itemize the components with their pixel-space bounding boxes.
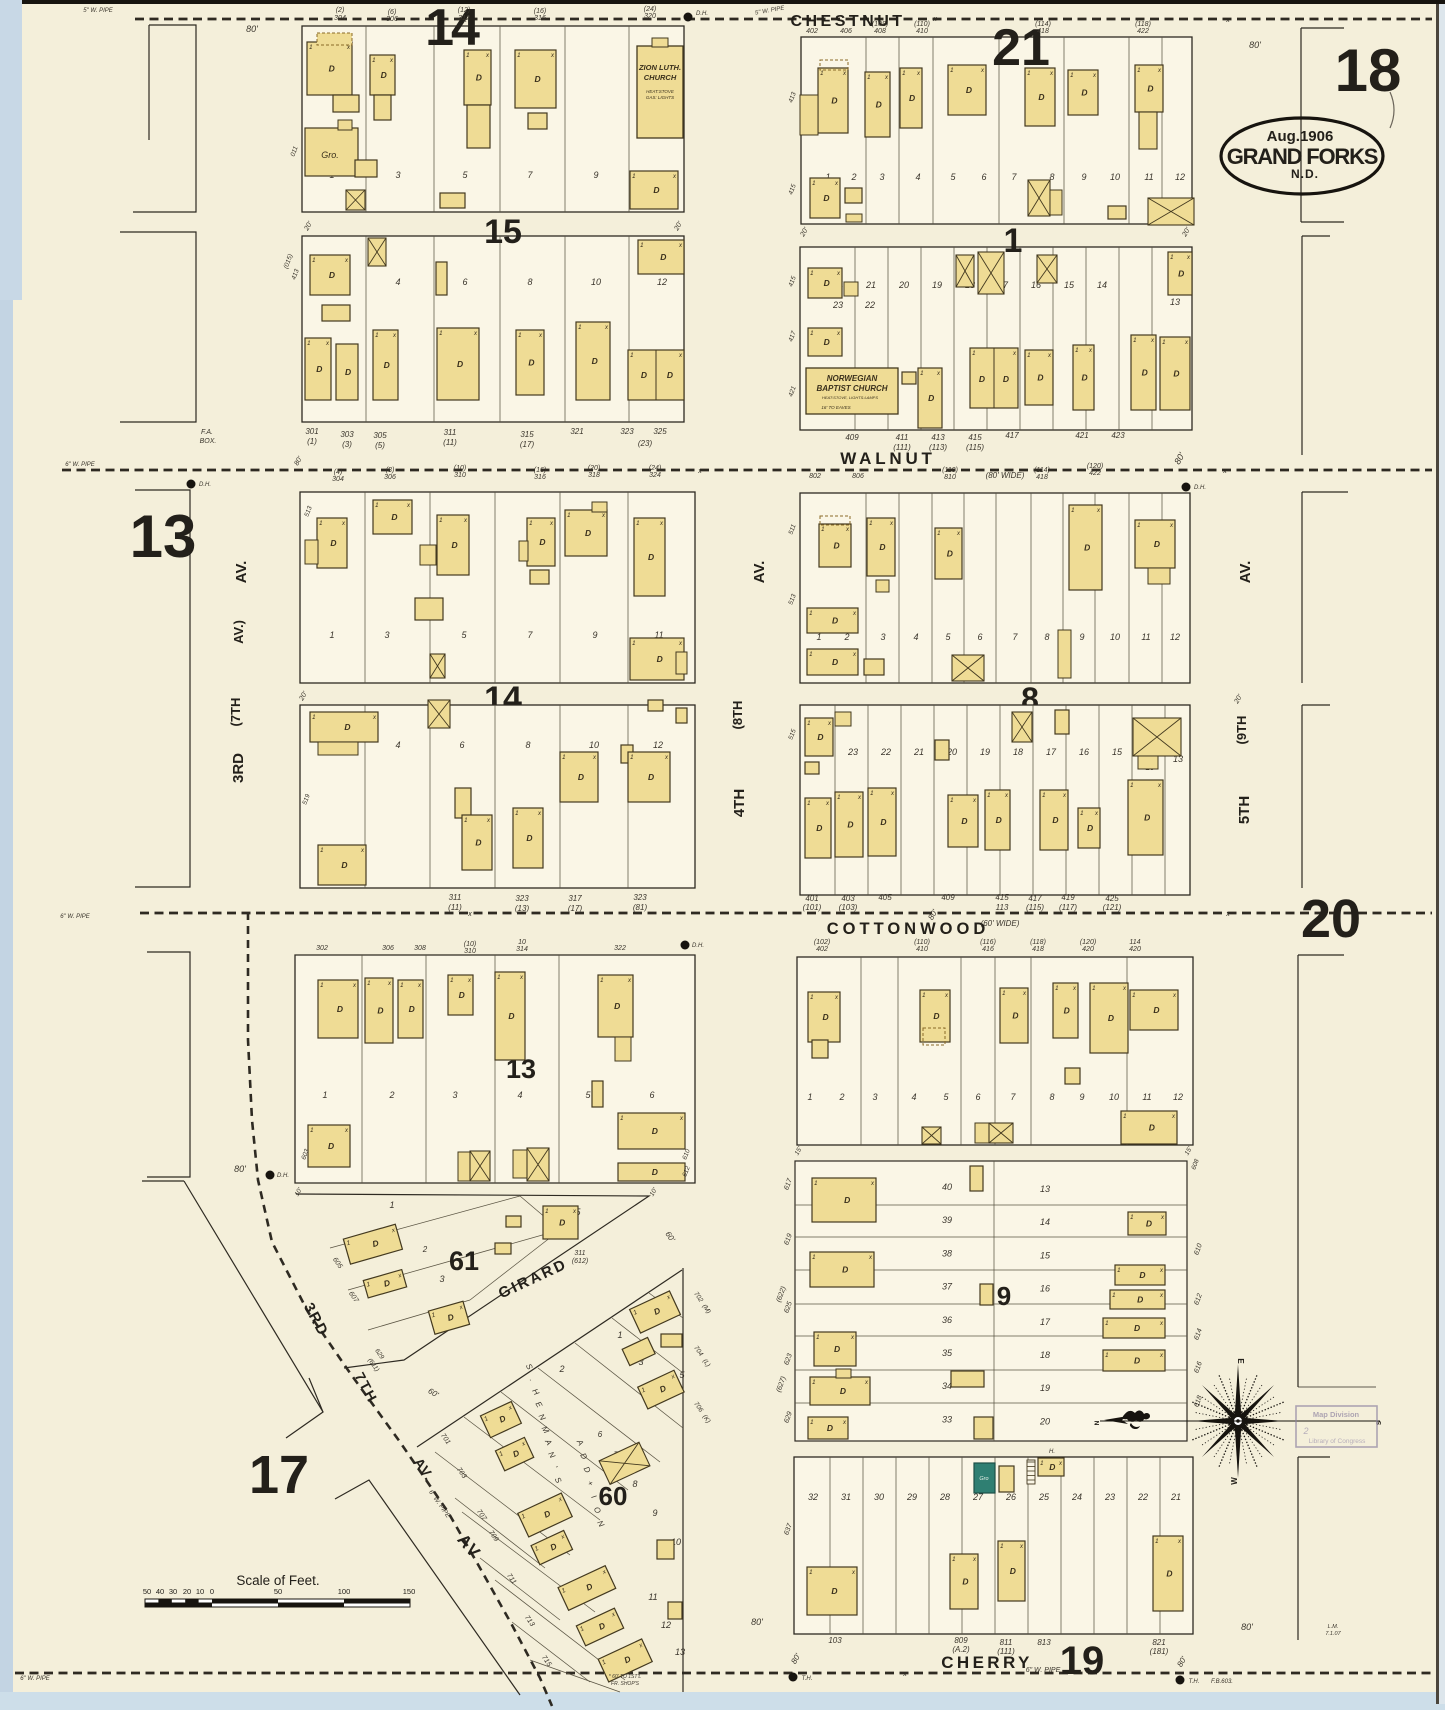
svg-text:420: 420 xyxy=(1082,946,1094,953)
svg-text:12: 12 xyxy=(1173,1092,1183,1102)
svg-text:301: 301 xyxy=(305,427,318,436)
svg-text:150: 150 xyxy=(403,1587,416,1596)
svg-text:D: D xyxy=(657,654,663,664)
svg-text:10: 10 xyxy=(1110,172,1120,182)
svg-text:20: 20 xyxy=(183,1587,191,1596)
svg-text:D: D xyxy=(842,1265,848,1275)
svg-text:1: 1 xyxy=(1170,254,1174,261)
svg-text:1: 1 xyxy=(400,982,404,989)
svg-text:T.H.: T.H. xyxy=(802,1676,813,1682)
svg-text:322: 322 xyxy=(614,945,626,952)
svg-text:11: 11 xyxy=(648,1592,657,1602)
svg-text:7.1.07: 7.1.07 xyxy=(1325,1631,1341,1637)
svg-text:8: 8 xyxy=(1049,1092,1054,1102)
svg-text:4TH: 4TH xyxy=(731,789,748,817)
svg-text:6: 6 xyxy=(462,277,467,287)
svg-text:15: 15 xyxy=(1112,747,1123,757)
svg-text:304: 304 xyxy=(332,476,344,483)
svg-text:D: D xyxy=(1003,374,1009,384)
svg-text:Gro.: Gro. xyxy=(321,150,339,160)
svg-text:80': 80' xyxy=(1241,1622,1253,1632)
svg-text:3: 3 xyxy=(880,632,885,642)
svg-text:D: D xyxy=(1037,373,1043,383)
svg-text:F.B.603.: F.B.603. xyxy=(1211,1679,1233,1685)
svg-text:28: 28 xyxy=(939,1492,950,1502)
svg-text:1: 1 xyxy=(1137,67,1141,74)
svg-text:402: 402 xyxy=(816,946,828,953)
svg-text:318: 318 xyxy=(588,472,600,479)
svg-text:22: 22 xyxy=(1137,1492,1148,1502)
svg-text:(114): (114) xyxy=(1035,21,1051,28)
svg-text:9: 9 xyxy=(593,170,598,180)
svg-text:2: 2 xyxy=(558,1364,564,1374)
svg-text:D: D xyxy=(876,100,882,110)
svg-text:D: D xyxy=(1084,543,1090,553)
svg-text:1: 1 xyxy=(902,70,906,77)
svg-text:1: 1 xyxy=(617,1330,622,1340)
svg-text:D: D xyxy=(585,528,591,538)
svg-text:1: 1 xyxy=(439,330,443,337)
svg-text:421: 421 xyxy=(1075,431,1088,440)
svg-text:1: 1 xyxy=(1132,992,1136,999)
svg-text:11: 11 xyxy=(1141,632,1150,642)
svg-text:(181): (181) xyxy=(1150,1647,1169,1656)
svg-text:D: D xyxy=(1081,88,1087,98)
svg-text:2: 2 xyxy=(388,1090,394,1100)
svg-text:D: D xyxy=(1049,1462,1055,1472)
svg-text:20: 20 xyxy=(1301,889,1361,949)
svg-text:13: 13 xyxy=(675,1647,685,1657)
svg-text:D: D xyxy=(476,73,482,83)
svg-text:(11): (11) xyxy=(443,438,457,447)
svg-text:17: 17 xyxy=(1046,747,1057,757)
svg-text:308: 308 xyxy=(414,945,426,952)
svg-text:(111): (111) xyxy=(893,443,911,452)
svg-text:9: 9 xyxy=(652,1508,657,1518)
svg-text:1: 1 xyxy=(636,520,640,527)
svg-text:1: 1 xyxy=(920,370,924,377)
svg-text:D: D xyxy=(341,860,347,870)
svg-text:(5): (5) xyxy=(375,441,385,450)
svg-text:23: 23 xyxy=(1104,1492,1115,1502)
svg-text:D: D xyxy=(1038,92,1044,102)
svg-text:410: 410 xyxy=(916,28,928,35)
svg-text:4: 4 xyxy=(913,632,918,642)
svg-text:813: 813 xyxy=(1037,1638,1051,1647)
svg-text:1: 1 xyxy=(870,790,874,797)
svg-text:8: 8 xyxy=(1044,632,1049,642)
svg-text:1: 1 xyxy=(1130,782,1134,789)
svg-text:411: 411 xyxy=(896,433,909,442)
svg-text:(10): (10) xyxy=(454,465,466,472)
svg-text:422: 422 xyxy=(1089,470,1101,477)
svg-text:HEAT:STOVE, LIGHTS:LAMPS: HEAT:STOVE, LIGHTS:LAMPS xyxy=(822,395,878,400)
svg-text:806: 806 xyxy=(852,473,864,480)
svg-text:418: 418 xyxy=(1037,28,1049,35)
svg-text:20: 20 xyxy=(1039,1416,1050,1426)
svg-text:(13): (13) xyxy=(515,904,530,913)
svg-text:1: 1 xyxy=(320,847,324,854)
svg-text:100: 100 xyxy=(338,1587,351,1596)
svg-text:1: 1 xyxy=(322,1090,327,1100)
svg-text:1: 1 xyxy=(1075,347,1079,354)
svg-text:D: D xyxy=(962,1577,968,1587)
svg-text:D: D xyxy=(384,360,390,370)
svg-text:1: 1 xyxy=(515,810,519,817)
svg-text:D: D xyxy=(823,1012,829,1022)
svg-text:D: D xyxy=(452,540,458,550)
svg-text:(20): (20) xyxy=(588,465,600,472)
svg-text:D.H.: D.H. xyxy=(199,482,211,488)
svg-text:16: 16 xyxy=(1079,747,1089,757)
svg-text:1: 1 xyxy=(367,980,371,987)
svg-text:1: 1 xyxy=(1092,985,1096,992)
svg-text:(118): (118) xyxy=(1135,21,1151,28)
svg-text:303: 303 xyxy=(340,430,354,439)
svg-text:(23): (23) xyxy=(638,439,653,448)
svg-text:1: 1 xyxy=(329,630,334,640)
svg-text:10: 10 xyxy=(1109,1092,1119,1102)
svg-text:416: 416 xyxy=(982,946,994,953)
svg-text:GAS: LIGHTS: GAS: LIGHTS xyxy=(646,95,674,100)
svg-text:x: x xyxy=(1222,468,1227,475)
svg-text:1: 1 xyxy=(809,610,813,617)
svg-text:1: 1 xyxy=(1042,792,1046,799)
svg-text:D: D xyxy=(391,512,397,522)
svg-text:D: D xyxy=(344,722,350,732)
svg-text:38: 38 xyxy=(942,1248,952,1258)
svg-text:1: 1 xyxy=(810,1419,814,1426)
svg-text:409: 409 xyxy=(941,893,955,902)
svg-text:811: 811 xyxy=(1000,1638,1013,1647)
svg-text:12: 12 xyxy=(661,1620,671,1630)
svg-text:1: 1 xyxy=(837,794,841,801)
svg-text:Scale of Feet.: Scale of Feet. xyxy=(236,1573,319,1588)
svg-text:1: 1 xyxy=(812,1379,816,1386)
svg-text:D: D xyxy=(824,278,830,288)
svg-text:D: D xyxy=(1137,1295,1143,1305)
svg-text:16: 16 xyxy=(1040,1284,1050,1294)
svg-text:D: D xyxy=(834,1344,840,1354)
svg-text:25: 25 xyxy=(1038,1492,1050,1502)
svg-text:9: 9 xyxy=(1081,172,1086,182)
svg-text:D: D xyxy=(475,838,481,848)
svg-text:415: 415 xyxy=(968,433,982,442)
svg-text:323: 323 xyxy=(620,427,634,436)
svg-text:10: 10 xyxy=(591,277,601,287)
svg-text:1: 1 xyxy=(632,173,636,180)
svg-text:11: 11 xyxy=(1144,172,1153,182)
svg-text:(111): (111) xyxy=(997,1647,1015,1656)
svg-text:12: 12 xyxy=(1175,172,1185,182)
svg-text:305: 305 xyxy=(373,431,387,440)
svg-text:6" W. PIPE: 6" W. PIPE xyxy=(20,1676,51,1682)
svg-text:D: D xyxy=(660,252,666,262)
svg-text:10: 10 xyxy=(196,1587,204,1596)
svg-text:D: D xyxy=(844,1195,850,1205)
svg-text:CHURCH: CHURCH xyxy=(644,73,677,82)
svg-text:D: D xyxy=(1153,1005,1159,1015)
svg-text:(7TH: (7TH xyxy=(228,698,243,727)
svg-text:D: D xyxy=(816,823,822,833)
svg-text:14: 14 xyxy=(425,0,480,57)
svg-text:1: 1 xyxy=(517,52,521,59)
svg-text:D: D xyxy=(823,193,829,203)
svg-text:Map Division: Map Division xyxy=(1313,1410,1360,1419)
svg-text:3RD: 3RD xyxy=(230,753,247,783)
svg-text:2: 2 xyxy=(850,172,856,182)
svg-text:D: D xyxy=(653,185,659,195)
svg-text:(101): (101) xyxy=(803,903,822,912)
svg-text:4: 4 xyxy=(517,1090,522,1100)
svg-text:3: 3 xyxy=(395,170,400,180)
svg-text:32: 32 xyxy=(808,1492,818,1502)
svg-text:(4): (4) xyxy=(334,469,343,476)
svg-text:D.H.: D.H. xyxy=(692,943,704,949)
svg-text:26: 26 xyxy=(1005,1492,1016,1502)
svg-text:D: D xyxy=(539,537,545,547)
svg-text:19: 19 xyxy=(1060,1639,1105,1683)
svg-text:1: 1 xyxy=(1130,1214,1134,1221)
svg-text:D: D xyxy=(909,93,915,103)
svg-text:D: D xyxy=(817,732,823,742)
svg-text:FR. SHOP'S: FR. SHOP'S xyxy=(611,1681,640,1687)
svg-text:HEAT:STOVE: HEAT:STOVE xyxy=(646,89,675,94)
svg-text:D: D xyxy=(880,817,886,827)
svg-text:418: 418 xyxy=(1032,946,1044,953)
svg-text:1: 1 xyxy=(1123,1113,1127,1120)
svg-text:(612): (612) xyxy=(572,1258,588,1265)
svg-text:1: 1 xyxy=(816,1334,820,1341)
svg-text:AV.: AV. xyxy=(1237,561,1254,584)
svg-text:20: 20 xyxy=(898,280,909,290)
svg-text:3: 3 xyxy=(439,1274,444,1284)
svg-text:D: D xyxy=(457,359,463,369)
svg-text:(8TH: (8TH xyxy=(730,701,745,730)
svg-text:D: D xyxy=(879,542,885,552)
svg-text:D: D xyxy=(1166,1569,1172,1579)
svg-text:WALNUT: WALNUT xyxy=(840,449,936,468)
svg-text:D: D xyxy=(831,1586,837,1596)
svg-text:(6): (6) xyxy=(388,9,397,16)
svg-text:21: 21 xyxy=(865,280,876,290)
svg-text:33: 33 xyxy=(942,1414,952,1424)
svg-text:D: D xyxy=(459,990,465,1000)
svg-text:1: 1 xyxy=(814,1180,818,1187)
svg-text:1: 1 xyxy=(466,52,470,59)
svg-text:1: 1 xyxy=(950,797,954,804)
svg-text:BAPTIST CHURCH: BAPTIST CHURCH xyxy=(816,384,887,393)
svg-text:(1): (1) xyxy=(307,437,317,446)
svg-text:401: 401 xyxy=(805,894,818,903)
svg-text:1: 1 xyxy=(821,526,825,533)
svg-text:Aug.1906: Aug.1906 xyxy=(1267,128,1334,145)
svg-text:22: 22 xyxy=(864,300,875,310)
svg-text:D: D xyxy=(559,1218,565,1228)
svg-text:1: 1 xyxy=(529,520,533,527)
svg-text:1: 1 xyxy=(312,257,316,264)
svg-text:1: 1 xyxy=(497,974,501,981)
svg-text:417: 417 xyxy=(1028,894,1042,903)
svg-text:80': 80' xyxy=(1249,40,1261,50)
svg-text:306: 306 xyxy=(382,945,394,952)
svg-text:AV.): AV.) xyxy=(231,620,246,644)
svg-text:D: D xyxy=(1149,1123,1155,1133)
svg-text:821: 821 xyxy=(1152,1638,1165,1647)
svg-text:E: E xyxy=(1236,1358,1245,1364)
svg-text:1: 1 xyxy=(950,67,954,74)
svg-text:1: 1 xyxy=(1162,339,1166,346)
svg-text:1: 1 xyxy=(450,977,454,984)
svg-text:(17): (17) xyxy=(568,904,583,913)
svg-text:D: D xyxy=(840,1386,846,1396)
svg-text:16' TO EAVES: 16' TO EAVES xyxy=(821,405,850,410)
svg-text:9: 9 xyxy=(1079,632,1084,642)
svg-text:315: 315 xyxy=(520,430,534,439)
svg-text:80': 80' xyxy=(751,1617,763,1627)
svg-text:15: 15 xyxy=(1040,1250,1051,1260)
svg-text:S: S xyxy=(1377,1421,1383,1425)
svg-text:D.H.: D.H. xyxy=(277,1173,289,1179)
svg-text:D: D xyxy=(641,370,647,380)
svg-text:x: x xyxy=(932,16,937,23)
svg-text:D: D xyxy=(345,367,351,377)
svg-text:1: 1 xyxy=(1000,1543,1004,1550)
svg-text:37: 37 xyxy=(942,1282,953,1292)
svg-text:D: D xyxy=(1139,1270,1145,1280)
svg-text:1: 1 xyxy=(372,57,376,64)
svg-text:310: 310 xyxy=(454,472,466,479)
svg-text:14: 14 xyxy=(1040,1217,1050,1227)
svg-text:10: 10 xyxy=(589,740,599,750)
svg-text:(11): (11) xyxy=(448,903,462,912)
svg-text:40: 40 xyxy=(156,1587,164,1596)
svg-text:(113): (113) xyxy=(929,443,947,452)
svg-text:311: 311 xyxy=(444,428,457,437)
svg-text:D: D xyxy=(1134,1356,1140,1366)
svg-text:21: 21 xyxy=(913,747,924,757)
svg-text:H.: H. xyxy=(1049,1449,1055,1455)
svg-text:1: 1 xyxy=(1137,522,1141,529)
svg-text:D: D xyxy=(947,549,953,559)
svg-text:1: 1 xyxy=(632,640,636,647)
svg-text:D: D xyxy=(996,815,1002,825)
svg-text:314: 314 xyxy=(516,946,528,953)
svg-text:6" W. PIPE: 6" W. PIPE xyxy=(1026,1667,1061,1674)
svg-text:1: 1 xyxy=(319,520,323,527)
svg-text:17: 17 xyxy=(1040,1317,1051,1327)
svg-text:6" W. PIPE: 6" W. PIPE xyxy=(60,914,91,920)
svg-text:1: 1 xyxy=(312,714,316,721)
svg-text:(81): (81) xyxy=(633,903,648,912)
svg-text:317: 317 xyxy=(568,894,582,903)
svg-text:1: 1 xyxy=(807,1092,812,1102)
svg-text:5TH: 5TH xyxy=(1236,796,1253,824)
svg-text:423: 423 xyxy=(1111,431,1125,440)
svg-text:40: 40 xyxy=(942,1182,952,1192)
svg-text:D: D xyxy=(409,1004,415,1014)
svg-text:320: 320 xyxy=(644,13,656,20)
svg-text:L.M.: L.M. xyxy=(1328,1624,1339,1630)
svg-text:D: D xyxy=(329,270,335,280)
svg-text:D: D xyxy=(1173,369,1179,379)
svg-text:(12): (12) xyxy=(458,7,470,14)
svg-text:(108): (108) xyxy=(872,21,888,28)
svg-text:(120): (120) xyxy=(1087,463,1103,470)
svg-text:1: 1 xyxy=(937,530,941,537)
svg-text:D: D xyxy=(834,541,840,551)
svg-text:1: 1 xyxy=(518,332,522,339)
svg-text:18: 18 xyxy=(1040,1350,1050,1360)
svg-text:1: 1 xyxy=(310,1127,314,1134)
svg-text:36: 36 xyxy=(942,1315,952,1325)
svg-text:CHERRY: CHERRY xyxy=(941,1653,1033,1672)
svg-text:310: 310 xyxy=(464,948,476,955)
svg-text:4: 4 xyxy=(915,172,920,182)
svg-text:13: 13 xyxy=(1040,1184,1050,1194)
svg-text:17: 17 xyxy=(249,1445,309,1505)
svg-text:x: x xyxy=(1225,17,1230,24)
svg-text:(80' WIDE): (80' WIDE) xyxy=(986,471,1025,480)
svg-text:D: D xyxy=(667,370,673,380)
svg-text:x: x xyxy=(1225,911,1230,918)
svg-text:N.D.: N.D. xyxy=(1291,167,1319,181)
svg-text:(116): (116) xyxy=(980,939,996,946)
svg-text:(110): (110) xyxy=(914,21,930,28)
svg-text:413: 413 xyxy=(931,433,945,442)
svg-text:1: 1 xyxy=(807,720,811,727)
svg-text:6: 6 xyxy=(977,632,982,642)
svg-text:1: 1 xyxy=(810,330,814,337)
svg-text:114: 114 xyxy=(1129,939,1140,946)
svg-text:1: 1 xyxy=(1040,1460,1044,1467)
svg-text:1: 1 xyxy=(812,1254,816,1261)
svg-text:(121): (121) xyxy=(1103,903,1122,912)
svg-text:Library of Congress: Library of Congress xyxy=(1309,1438,1366,1445)
svg-text:302: 302 xyxy=(316,945,328,952)
svg-text:D: D xyxy=(979,374,985,384)
svg-text:1: 1 xyxy=(309,44,313,51)
svg-text:1: 1 xyxy=(987,792,991,799)
svg-text:50: 50 xyxy=(143,1587,151,1596)
svg-text:D: D xyxy=(526,833,532,843)
svg-text:405: 405 xyxy=(878,893,892,902)
svg-text:(118): (118) xyxy=(1030,939,1046,946)
svg-text:(103): (103) xyxy=(839,903,858,912)
svg-text:1: 1 xyxy=(375,502,379,509)
svg-text:24: 24 xyxy=(1071,1492,1082,1502)
svg-text:19: 19 xyxy=(1040,1383,1050,1393)
svg-text:T.H.: T.H. xyxy=(1189,1679,1200,1685)
svg-text:Gro: Gro xyxy=(979,1476,988,1482)
svg-text:9: 9 xyxy=(592,630,597,640)
svg-text:(16): (16) xyxy=(534,467,546,474)
svg-text:14: 14 xyxy=(1097,280,1107,290)
svg-text:1: 1 xyxy=(820,70,824,77)
svg-text:D: D xyxy=(330,538,336,548)
svg-text:1: 1 xyxy=(867,74,871,81)
svg-text:1: 1 xyxy=(630,754,634,761)
svg-text:D: D xyxy=(578,772,584,782)
svg-text:(102): (102) xyxy=(814,939,830,946)
svg-text:1: 1 xyxy=(307,340,311,347)
svg-text:D: D xyxy=(614,1001,620,1011)
svg-text:35: 35 xyxy=(942,1348,953,1358)
svg-text:306: 306 xyxy=(386,16,398,23)
svg-text:410: 410 xyxy=(916,946,928,953)
svg-text:4: 4 xyxy=(911,1092,916,1102)
svg-text:15: 15 xyxy=(484,213,522,251)
